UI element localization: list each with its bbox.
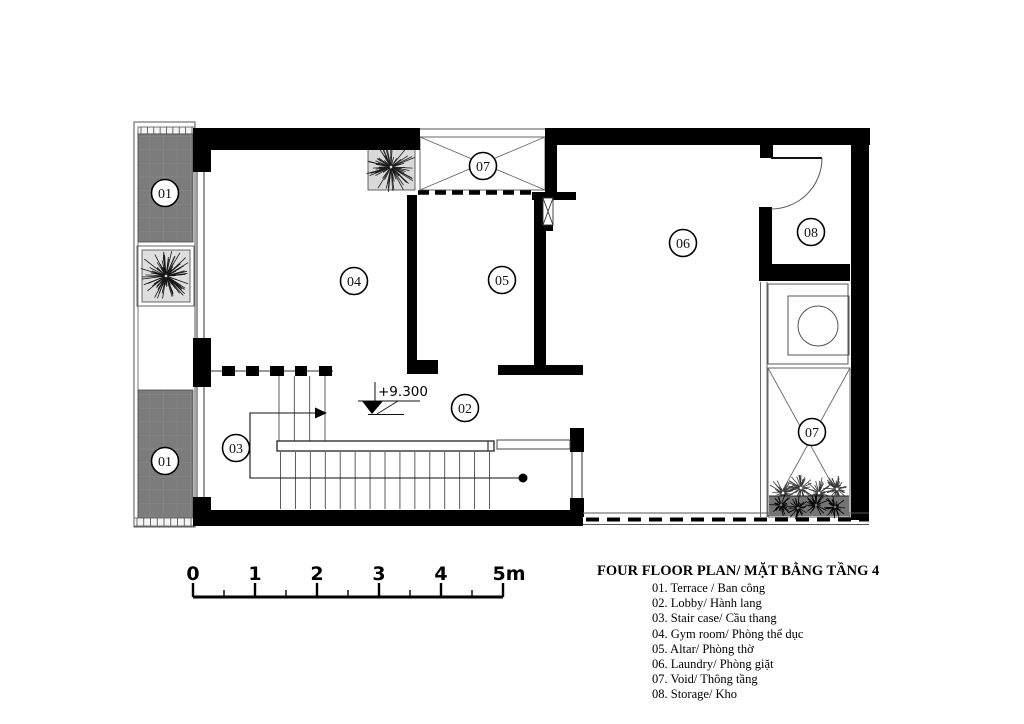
scale-label-3: 3 bbox=[372, 563, 385, 585]
legend: FOUR FLOOR PLAN/ MẶT BẰNG TẦNG 4 01. Ter… bbox=[597, 562, 879, 701]
legend-title: FOUR FLOOR PLAN/ MẶT BẰNG TẦNG 4 bbox=[597, 562, 879, 579]
scale-label-4: 4 bbox=[434, 563, 447, 585]
wall-segment bbox=[532, 192, 576, 200]
handrail bbox=[277, 441, 494, 451]
wall-segment bbox=[545, 145, 557, 197]
terrace-tile-strip-top bbox=[138, 127, 195, 134]
wall-segment bbox=[759, 264, 850, 281]
washing-machine-icon bbox=[768, 284, 849, 364]
room-labels: 01 01 02 03 04 05 06 07 bbox=[152, 153, 826, 475]
svg-text:07: 07 bbox=[476, 160, 490, 175]
scale-label-1: 1 bbox=[248, 563, 261, 585]
legend-item: 06. Laundry/ Phòng giặt bbox=[652, 657, 774, 671]
level-label: +9.300 bbox=[378, 384, 428, 400]
room-label-terrace-top: 01 bbox=[152, 180, 179, 207]
scale-label-5m: 5m bbox=[492, 563, 525, 585]
service-column bbox=[761, 282, 851, 519]
legend-item: 07. Void/ Thông tầng bbox=[652, 672, 758, 686]
svg-text:06: 06 bbox=[676, 237, 690, 252]
legend-item: 02. Lobby/ Hành lang bbox=[652, 596, 762, 610]
wall-segment bbox=[195, 510, 583, 526]
low-rail bbox=[497, 440, 570, 449]
room-label-void-top: 07 bbox=[470, 153, 497, 180]
svg-text:01: 01 bbox=[158, 455, 172, 470]
svg-text:08: 08 bbox=[804, 226, 818, 241]
room-label-stairs: 03 bbox=[223, 435, 250, 462]
level-marker: +9.300 bbox=[358, 382, 428, 415]
planter-box-top bbox=[367, 145, 416, 192]
wall-segment bbox=[407, 360, 438, 374]
wall-segment bbox=[759, 207, 772, 266]
lobby-window bbox=[572, 452, 582, 498]
svg-text:05: 05 bbox=[495, 274, 509, 289]
wall-segment bbox=[407, 195, 417, 365]
door-arc-icon bbox=[771, 158, 822, 209]
room-label-void-right: 07 bbox=[799, 419, 826, 446]
stair-treads-lower bbox=[281, 452, 490, 509]
room-label-gym: 04 bbox=[341, 268, 368, 295]
wall-segment bbox=[195, 128, 420, 150]
legend-item: 05. Altar/ Phòng thờ bbox=[652, 642, 754, 656]
room-label-storage: 08 bbox=[798, 219, 825, 246]
room-label-terrace-bottom: 01 bbox=[152, 448, 179, 475]
shaft-window bbox=[543, 198, 553, 225]
svg-text:02: 02 bbox=[458, 402, 472, 417]
scale-bar: 0 1 2 3 4 5m bbox=[186, 563, 525, 597]
svg-text:01: 01 bbox=[158, 187, 172, 202]
floor-plan-page: +9.300 bbox=[0, 0, 1024, 724]
stair-treads-upper bbox=[279, 376, 325, 441]
terrace-window-lines bbox=[197, 172, 204, 497]
plants-band bbox=[769, 475, 849, 519]
terrace-tile-strip-bottom bbox=[134, 518, 195, 526]
legend-item: 08. Storage/ Kho bbox=[652, 687, 737, 701]
wall-segment bbox=[498, 365, 583, 375]
planter-box-left bbox=[137, 246, 194, 306]
legend-item: 04. Gym room/ Phòng thể dục bbox=[652, 627, 804, 641]
wall-segment bbox=[851, 128, 869, 520]
wall-segment bbox=[760, 143, 773, 158]
legend-item: 01. Terrace / Ban công bbox=[652, 581, 766, 595]
room-label-laundry: 06 bbox=[670, 230, 697, 257]
room-label-altar: 05 bbox=[489, 267, 516, 294]
wall-segment bbox=[545, 128, 870, 145]
legend-item: 03. Stair case/ Cầu thang bbox=[652, 611, 777, 625]
walking-line-dot bbox=[519, 474, 528, 483]
svg-text:03: 03 bbox=[229, 442, 243, 457]
floor-plan-svg: +9.300 bbox=[0, 0, 1024, 724]
wall-segment bbox=[193, 497, 211, 526]
wall-segment bbox=[193, 338, 211, 387]
svg-text:04: 04 bbox=[347, 275, 361, 290]
svg-text:07: 07 bbox=[805, 426, 819, 441]
room-label-lobby: 02 bbox=[452, 395, 479, 422]
scale-label-2: 2 bbox=[310, 563, 323, 585]
scale-label-0: 0 bbox=[186, 563, 199, 585]
wall-segment bbox=[570, 428, 584, 452]
